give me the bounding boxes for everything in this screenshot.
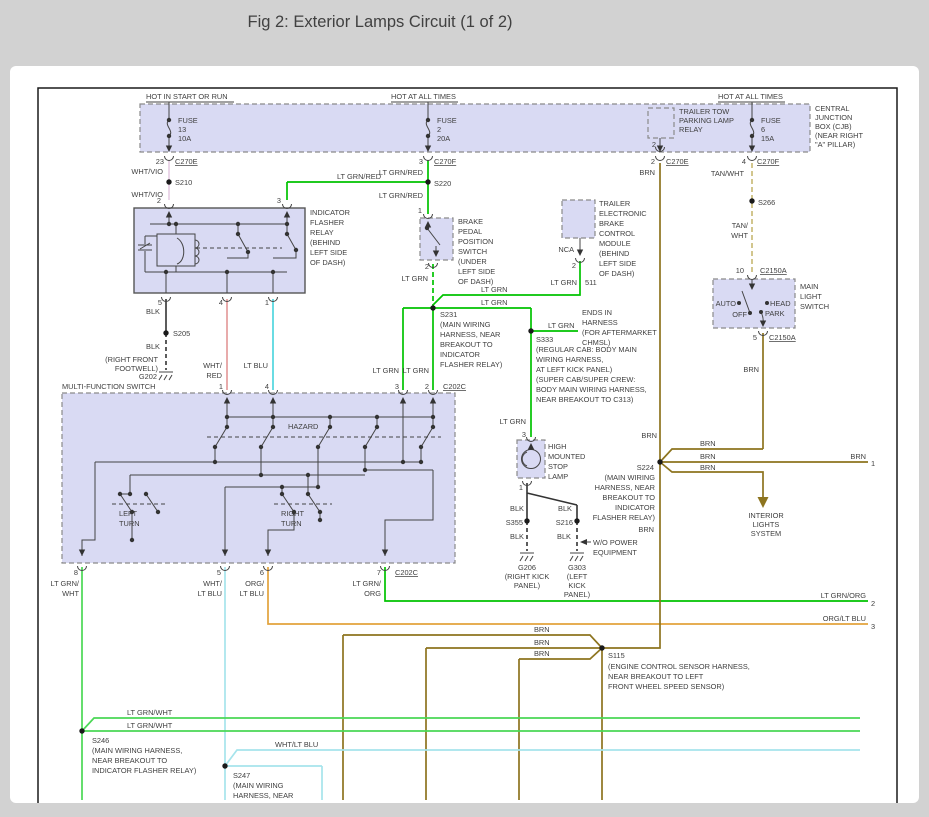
- svg-text:LT GRN: LT GRN: [500, 417, 526, 426]
- svg-text:LT GRN/RED: LT GRN/RED: [379, 191, 423, 200]
- svg-text:PARK: PARK: [765, 309, 785, 318]
- svg-text:ORG/: ORG/: [245, 579, 265, 588]
- svg-text:AT LEFT KICK PANEL): AT LEFT KICK PANEL): [536, 365, 612, 374]
- svg-text:FUSE: FUSE: [761, 116, 781, 125]
- svg-text:LT GRN: LT GRN: [403, 366, 429, 375]
- svg-text:5: 5: [158, 298, 162, 307]
- svg-text:TURN: TURN: [281, 519, 302, 528]
- rail-hot-start-run: HOT IN START OR RUN: [146, 92, 228, 101]
- svg-text:MAIN: MAIN: [800, 282, 818, 291]
- svg-text:BLK: BLK: [510, 532, 524, 541]
- svg-text:10: 10: [736, 266, 744, 275]
- connector-c202c-bottom: C202C: [395, 568, 419, 577]
- splice-s246: S246: [92, 736, 109, 745]
- svg-text:LIGHT: LIGHT: [800, 292, 822, 301]
- svg-text:BRN: BRN: [700, 463, 716, 472]
- svg-text:BRN: BRN: [534, 638, 550, 647]
- svg-text:LT GRN: LT GRN: [481, 298, 507, 307]
- svg-text:HARNESS, NEAR: HARNESS, NEAR: [595, 483, 655, 492]
- mfs-title: MULTI-FUNCTION SWITCH: [62, 382, 155, 391]
- svg-text:LEFT SIDE: LEFT SIDE: [458, 267, 495, 276]
- splice-s355: S355: [506, 518, 523, 527]
- connector-c2150a-bottom: C2150A: [769, 333, 796, 342]
- svg-text:RELAY: RELAY: [310, 228, 334, 237]
- svg-text:BLK: BLK: [146, 307, 160, 316]
- svg-text:(RIGHT FRONT: (RIGHT FRONT: [105, 355, 158, 364]
- svg-text:JUNCTION: JUNCTION: [815, 113, 852, 122]
- splice-s205: S205: [173, 329, 190, 338]
- svg-text:TAN/WHT: TAN/WHT: [711, 169, 745, 178]
- splice-s216: S216: [556, 518, 573, 527]
- svg-text:HARNESS, NEAR: HARNESS, NEAR: [440, 330, 500, 339]
- svg-text:BRN: BRN: [534, 625, 550, 634]
- svg-text:WHT/: WHT/: [203, 579, 223, 588]
- interior-lights-system: SYSTEM: [751, 529, 781, 538]
- svg-text:NEAR BREAKOUT TO LEFT: NEAR BREAKOUT TO LEFT: [608, 672, 704, 681]
- svg-text:SWITCH: SWITCH: [800, 302, 829, 311]
- svg-text:FUSE: FUSE: [437, 116, 457, 125]
- svg-text:(FOR AFTERMARKET: (FOR AFTERMARKET: [582, 328, 657, 337]
- wiring-diagram-page: Fig 2: Exterior Lamps Circuit (1 of 2) H…: [0, 0, 929, 817]
- svg-text:(SUPER CAB/SUPER CREW:: (SUPER CAB/SUPER CREW:: [536, 375, 635, 384]
- svg-text:LT BLU: LT BLU: [198, 589, 222, 598]
- svg-text:RED: RED: [206, 371, 222, 380]
- svg-text:MOUNTED: MOUNTED: [548, 452, 585, 461]
- splice-s333: S333: [536, 335, 553, 344]
- connector-c270e-2: C270E: [666, 157, 689, 166]
- svg-text:3: 3: [419, 157, 423, 166]
- edge-ref-2: 2: [871, 599, 875, 608]
- svg-text:(LEFT: (LEFT: [567, 572, 588, 581]
- svg-text:1: 1: [519, 483, 523, 492]
- svg-text:BRN: BRN: [638, 525, 654, 534]
- svg-text:BRN: BRN: [641, 431, 657, 440]
- svg-text:BRN: BRN: [534, 649, 550, 658]
- svg-text:2: 2: [425, 382, 429, 391]
- svg-text:BREAKOUT TO: BREAKOUT TO: [602, 493, 655, 502]
- svg-text:LT GRN: LT GRN: [551, 278, 577, 287]
- svg-text:(MAIN WIRING: (MAIN WIRING: [440, 320, 491, 329]
- svg-text:BRN: BRN: [743, 365, 759, 374]
- connector-c202c-top: C202C: [443, 382, 467, 391]
- figure-title: Fig 2: Exterior Lamps Circuit (1 of 2): [248, 13, 513, 31]
- svg-text:1: 1: [418, 206, 422, 215]
- svg-text:BLK: BLK: [510, 504, 524, 513]
- svg-text:LT GRN/WHT: LT GRN/WHT: [127, 721, 173, 730]
- svg-text:LAMP: LAMP: [548, 472, 568, 481]
- splice-s266: S266: [758, 198, 775, 207]
- svg-text:LT BLU: LT BLU: [244, 361, 268, 370]
- svg-text:TRAILER: TRAILER: [599, 199, 630, 208]
- svg-text:LT GRN: LT GRN: [402, 274, 428, 283]
- svg-text:LT GRN: LT GRN: [373, 366, 399, 375]
- svg-text:BLK: BLK: [558, 504, 572, 513]
- svg-text:6: 6: [761, 125, 765, 134]
- splice-s247: S247: [233, 771, 250, 780]
- edge-ref-3: 3: [871, 622, 875, 631]
- svg-text:NEAR BREAKOUT TO: NEAR BREAKOUT TO: [92, 756, 167, 765]
- svg-text:STOP: STOP: [548, 462, 568, 471]
- svg-text:BOX (CJB): BOX (CJB): [815, 122, 852, 131]
- svg-text:WHT/VIO: WHT/VIO: [131, 167, 163, 176]
- svg-text:BLK: BLK: [557, 532, 571, 541]
- svg-text:HARNESS: HARNESS: [582, 318, 618, 327]
- svg-text:EQUIPMENT: EQUIPMENT: [593, 548, 637, 557]
- svg-text:INDICATOR FLASHER RELAY): INDICATOR FLASHER RELAY): [92, 766, 196, 775]
- svg-text:BRN: BRN: [700, 452, 716, 461]
- svg-text:(NEAR RIGHT: (NEAR RIGHT: [815, 131, 864, 140]
- svg-text:(BEHIND: (BEHIND: [310, 238, 340, 247]
- svg-text:LT GRN/RED: LT GRN/RED: [337, 172, 381, 181]
- svg-text:BRN: BRN: [639, 168, 655, 177]
- svg-text:LEFT SIDE: LEFT SIDE: [310, 248, 347, 257]
- splice-s210: S210: [175, 178, 192, 187]
- rail-hot-all-times-2: HOT AT ALL TIMES: [718, 92, 783, 101]
- svg-text:(BEHIND: (BEHIND: [599, 249, 629, 258]
- svg-text:4: 4: [265, 382, 269, 391]
- svg-text:7: 7: [377, 568, 381, 577]
- svg-text:HIGH: HIGH: [548, 442, 566, 451]
- svg-text:LT GRN/RED: LT GRN/RED: [379, 168, 423, 177]
- svg-text:WHT/: WHT/: [203, 361, 223, 370]
- svg-text:LT GRN/: LT GRN/: [353, 579, 382, 588]
- rail-hot-all-times-1: HOT AT ALL TIMES: [391, 92, 456, 101]
- svg-text:INDICATOR: INDICATOR: [440, 350, 480, 359]
- svg-text:6: 6: [260, 568, 264, 577]
- svg-text:LT GRN/: LT GRN/: [51, 579, 80, 588]
- svg-text:KICK: KICK: [568, 581, 585, 590]
- svg-text:(ENGINE CONTROL SENSOR HARNESS: (ENGINE CONTROL SENSOR HARNESS,: [608, 662, 750, 671]
- svg-text:(MAIN WIRING: (MAIN WIRING: [233, 781, 284, 790]
- exterior-lamps-circuit-diagram: Fig 2: Exterior Lamps Circuit (1 of 2) H…: [0, 0, 929, 817]
- svg-text:1: 1: [265, 298, 269, 307]
- svg-text:BREAKOUT TO: BREAKOUT TO: [440, 340, 493, 349]
- svg-text:ELECTRONIC: ELECTRONIC: [599, 209, 647, 218]
- svg-text:3: 3: [395, 382, 399, 391]
- svg-text:2: 2: [572, 261, 576, 270]
- svg-text:5: 5: [217, 568, 221, 577]
- svg-text:PANEL): PANEL): [514, 581, 540, 590]
- svg-text:TURN: TURN: [119, 519, 140, 528]
- connector-c270e-1: C270E: [175, 157, 198, 166]
- connector-c270f-2: C270F: [757, 157, 780, 166]
- svg-text:(REGULAR CAB: BODY MAIN: (REGULAR CAB: BODY MAIN: [536, 345, 637, 354]
- svg-text:LEFT SIDE: LEFT SIDE: [599, 259, 636, 268]
- svg-text:1: 1: [219, 382, 223, 391]
- svg-text:HARNESS, NEAR: HARNESS, NEAR: [233, 791, 293, 800]
- svg-text:PEDAL: PEDAL: [458, 227, 482, 236]
- svg-text:POSITION: POSITION: [458, 237, 493, 246]
- svg-text:NEAR BREAKOUT TO C313): NEAR BREAKOUT TO C313): [536, 395, 633, 404]
- svg-text:FLASHER RELAY): FLASHER RELAY): [593, 513, 655, 522]
- edge-ref-1: 1: [871, 459, 875, 468]
- svg-text:BRAKE: BRAKE: [599, 219, 624, 228]
- svg-text:BRN: BRN: [850, 452, 866, 461]
- hazard-label: HAZARD: [288, 422, 318, 431]
- svg-text:23: 23: [156, 157, 164, 166]
- svg-text:FRONT WHEEL SPEED SENSOR): FRONT WHEEL SPEED SENSOR): [608, 682, 724, 691]
- svg-text:PANEL): PANEL): [564, 590, 590, 599]
- svg-text:OF DASH): OF DASH): [599, 269, 634, 278]
- svg-text:15A: 15A: [761, 134, 774, 143]
- connector-c270f-1: C270F: [434, 157, 457, 166]
- connector-c2150a-top: C2150A: [760, 266, 787, 275]
- svg-text:ORG/LT BLU: ORG/LT BLU: [823, 614, 866, 623]
- svg-text:SWITCH: SWITCH: [458, 247, 487, 256]
- svg-text:RELAY: RELAY: [679, 125, 703, 134]
- splice-s224: S224: [637, 463, 654, 472]
- svg-text:2: 2: [437, 125, 441, 134]
- svg-text:3: 3: [277, 196, 281, 205]
- circuit-511: 511: [585, 278, 597, 287]
- svg-text:CENTRAL: CENTRAL: [815, 104, 850, 113]
- svg-text:(MAIN WIRING: (MAIN WIRING: [605, 473, 656, 482]
- svg-text:LIGHTS: LIGHTS: [753, 520, 780, 529]
- svg-text:MODULE: MODULE: [599, 239, 631, 248]
- svg-text:ORG: ORG: [364, 589, 381, 598]
- multi-function-switch: MULTI-FUNCTION SWITCH 1 4 HAZARD LEFT TU…: [62, 382, 455, 577]
- svg-text:TRAILER TOW: TRAILER TOW: [679, 107, 729, 116]
- svg-text:OF DASH): OF DASH): [310, 258, 345, 267]
- svg-text:OFF: OFF: [732, 310, 747, 319]
- svg-text:INDICATOR: INDICATOR: [615, 503, 655, 512]
- splice-s231: S231: [440, 310, 457, 319]
- svg-text:10A: 10A: [178, 134, 191, 143]
- svg-text:LT BLU: LT BLU: [240, 589, 264, 598]
- svg-text:BODY MAIN WIRING HARNESS,: BODY MAIN WIRING HARNESS,: [536, 385, 647, 394]
- svg-text:ENDS IN: ENDS IN: [582, 308, 612, 317]
- svg-text:(UNDER: (UNDER: [458, 257, 487, 266]
- svg-text:AUTO: AUTO: [716, 299, 737, 308]
- svg-text:W/O POWER: W/O POWER: [593, 538, 638, 547]
- svg-text:8: 8: [74, 568, 78, 577]
- svg-text:FLASHER RELAY): FLASHER RELAY): [440, 360, 502, 369]
- ground-g202: G202: [139, 372, 157, 381]
- svg-text:INDICATOR: INDICATOR: [310, 208, 350, 217]
- svg-text:2: 2: [651, 157, 655, 166]
- svg-text:WIRING HARNESS,: WIRING HARNESS,: [536, 355, 603, 364]
- svg-text:LEFT: LEFT: [119, 509, 138, 518]
- svg-text:HEAD: HEAD: [770, 299, 791, 308]
- svg-text:LT GRN: LT GRN: [548, 321, 574, 330]
- svg-text:BLK: BLK: [146, 342, 160, 351]
- svg-text:LT GRN/ORG: LT GRN/ORG: [821, 591, 867, 600]
- svg-text:FUSE: FUSE: [178, 116, 198, 125]
- svg-text:20A: 20A: [437, 134, 450, 143]
- svg-text:3: 3: [522, 430, 526, 439]
- svg-text:4: 4: [219, 298, 223, 307]
- ground-g206: G206: [518, 563, 536, 572]
- svg-text:13: 13: [178, 125, 186, 134]
- splice-s220: S220: [434, 179, 451, 188]
- svg-text:"A" PILLAR): "A" PILLAR): [815, 140, 855, 149]
- svg-text:WHT: WHT: [62, 589, 79, 598]
- ground-g303: G303: [568, 563, 586, 572]
- splice-s115: S115: [608, 651, 625, 660]
- svg-text:BRN: BRN: [700, 439, 716, 448]
- svg-text:PARKING LAMP: PARKING LAMP: [679, 116, 734, 125]
- svg-text:TAN/: TAN/: [732, 221, 749, 230]
- svg-text:NCA: NCA: [558, 245, 574, 254]
- svg-text:FLASHER: FLASHER: [310, 218, 344, 227]
- svg-text:4: 4: [742, 157, 746, 166]
- svg-text:LT GRN: LT GRN: [481, 285, 507, 294]
- svg-text:2: 2: [157, 196, 161, 205]
- svg-text:5: 5: [753, 333, 757, 342]
- svg-text:INTERIOR: INTERIOR: [748, 511, 783, 520]
- svg-text:(RIGHT KICK: (RIGHT KICK: [505, 572, 550, 581]
- svg-text:(MAIN WIRING HARNESS,: (MAIN WIRING HARNESS,: [92, 746, 182, 755]
- svg-text:CONTROL: CONTROL: [599, 229, 635, 238]
- svg-text:WHT: WHT: [731, 231, 748, 240]
- svg-text:BRAKE: BRAKE: [458, 217, 483, 226]
- svg-text:LT GRN/WHT: LT GRN/WHT: [127, 708, 173, 717]
- svg-text:WHT/LT BLU: WHT/LT BLU: [275, 740, 318, 749]
